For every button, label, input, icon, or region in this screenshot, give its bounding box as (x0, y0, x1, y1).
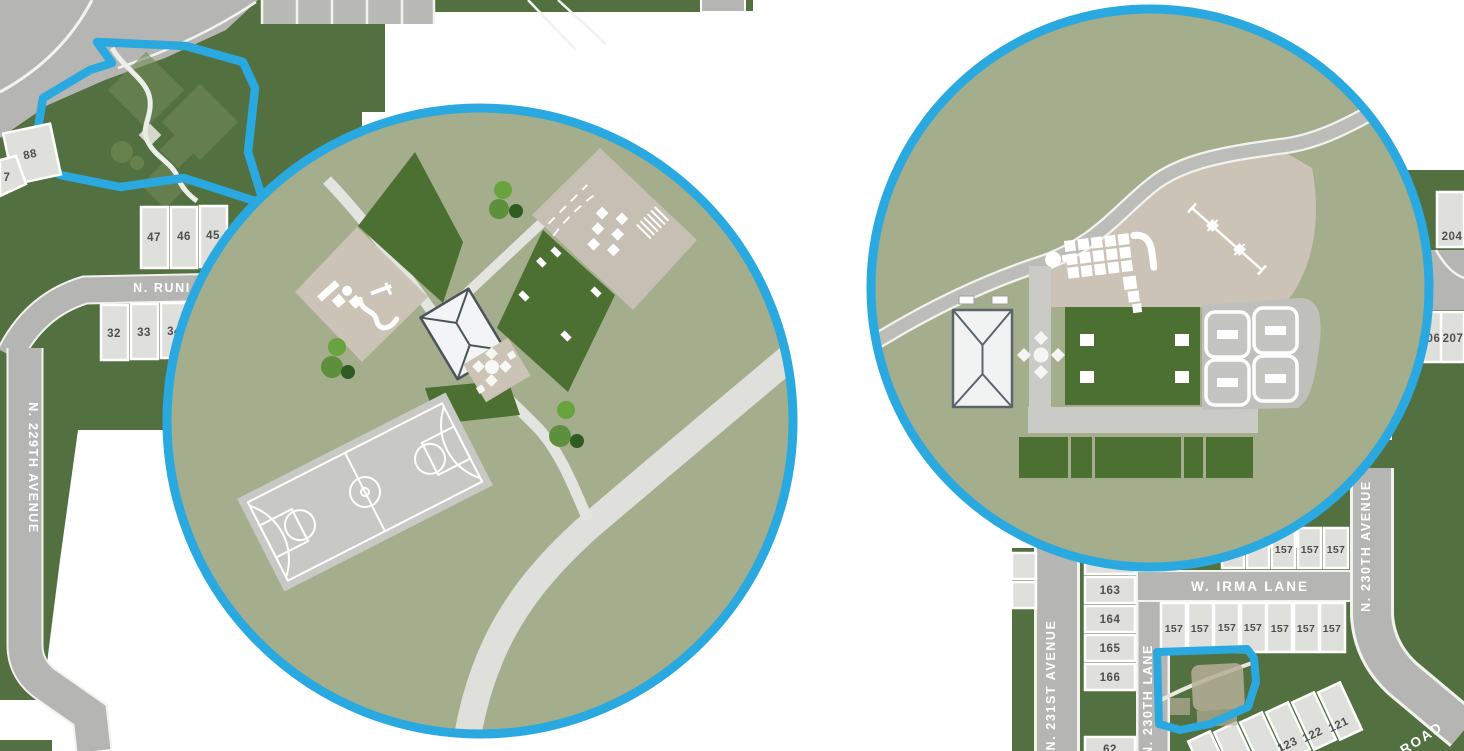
road-irma: W. IRMA LANE (1138, 579, 1358, 594)
street-runion-label: N. RUNI (133, 281, 191, 295)
road-stub (702, 0, 744, 11)
lot-157-s6-label: 157 (1297, 623, 1315, 635)
soccer-field (1065, 307, 1200, 405)
lot-166-label: 166 (1100, 672, 1121, 684)
lot-47-label: 47 (147, 232, 161, 244)
lot-164-label: 164 (1100, 614, 1121, 626)
street-230th-lane-label: N. 230TH LANE (1141, 644, 1155, 751)
lot-165-label: 165 (1100, 643, 1121, 655)
lot-33-label: 33 (137, 327, 151, 339)
lot-32-label: 32 (107, 328, 121, 340)
lot-46-label: 46 (177, 231, 191, 243)
lot-45-label: 45 (206, 230, 220, 242)
garden-plots (1019, 437, 1253, 478)
lot-157-s3-label: 157 (1218, 622, 1236, 634)
lot-62-label: 62 (1103, 744, 1117, 751)
ramada-pavilion-right (953, 296, 1012, 407)
street-230th-ave-label: N. 230TH AVENUE (1359, 480, 1373, 612)
street-231st-label: N. 231ST AVENUE (1044, 620, 1058, 751)
street-229th-label: N. 229TH AVENUE (26, 402, 40, 534)
site-map-canvas: 88 7 47 46 45 N. RUNI 32 33 34 N. 229TH … (0, 0, 1464, 751)
magnifier-left (167, 108, 815, 751)
magnifier-right (871, 9, 1429, 567)
site-map-page: 88 7 47 46 45 N. RUNI 32 33 34 N. 229TH … (0, 0, 1464, 751)
lot-207-label: 207 (1443, 333, 1464, 345)
street-irma-label: W. IRMA LANE (1191, 579, 1309, 594)
left-map-ground-sliver (0, 740, 52, 751)
lot-7-label: 7 (4, 172, 11, 184)
lot-157-n1-label: 157 (1275, 544, 1293, 556)
lot-157-s4-label: 157 (1244, 622, 1262, 634)
lot-157-s5-label: 157 (1271, 623, 1289, 635)
lots-row-irma-south: 157 157 157 157 157 157 157 (1161, 603, 1345, 652)
road-231st: N. 231ST AVENUE (1044, 545, 1058, 751)
lot-157-s2-label: 157 (1191, 623, 1209, 635)
lot-157-n3-label: 157 (1327, 544, 1345, 556)
lot-157-s1-label: 157 (1165, 623, 1183, 635)
lot-163-label: 163 (1100, 585, 1121, 597)
lot-204-label: 204 (1442, 231, 1463, 243)
green-stub (746, 0, 753, 11)
lot-157-s7-label: 157 (1323, 623, 1341, 635)
picnic-table-icon (485, 360, 499, 374)
lot-157-n2-label: 157 (1301, 544, 1319, 556)
